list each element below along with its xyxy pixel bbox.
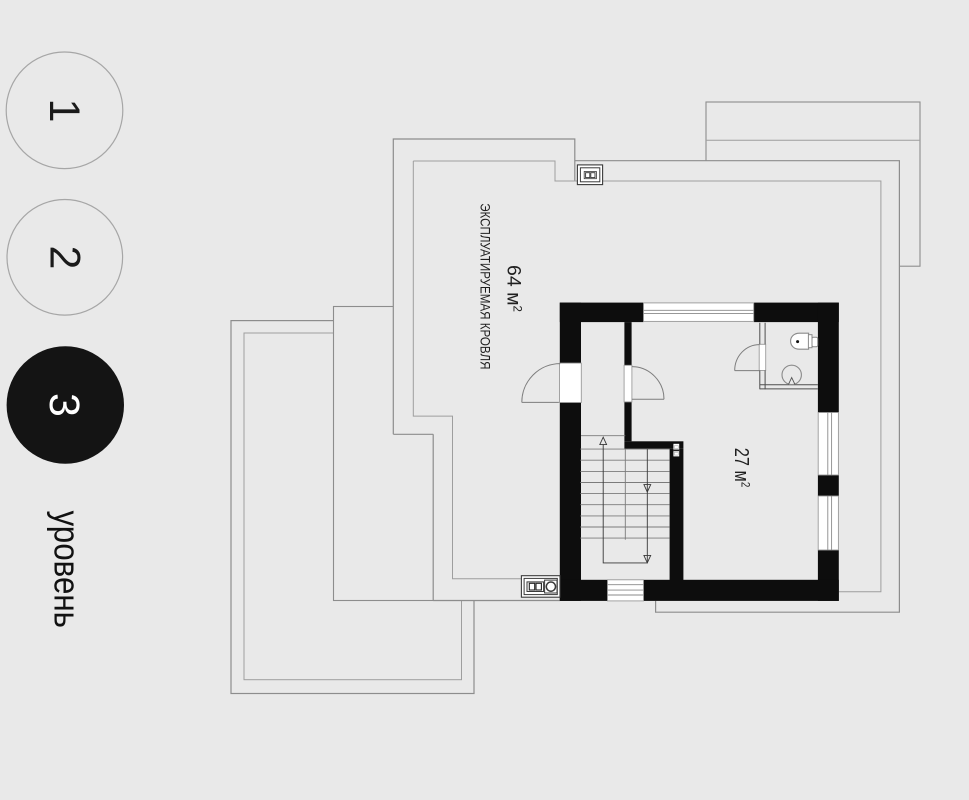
- svg-text:64 м2: 64 м2: [503, 265, 525, 312]
- svg-text:уровень: уровень: [47, 511, 88, 629]
- svg-text:27 м2: 27 м2: [730, 448, 752, 488]
- svg-text:ЭКСПЛУАТИРУЕМАЯ КРОВЛЯ: ЭКСПЛУАТИРУЕМАЯ КРОВЛЯ: [477, 203, 492, 369]
- svg-text:3: 3: [40, 393, 88, 417]
- svg-text:1: 1: [40, 99, 88, 123]
- svg-text:2: 2: [40, 246, 88, 270]
